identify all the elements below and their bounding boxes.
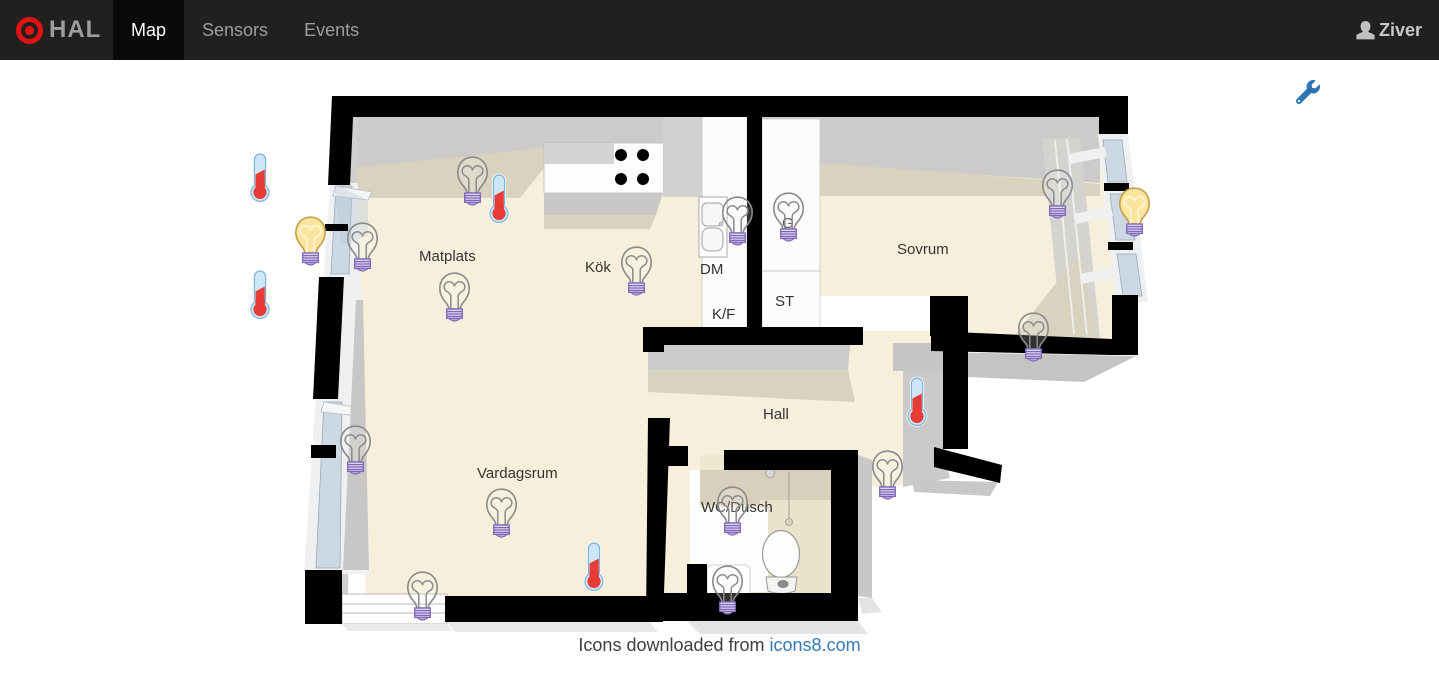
svg-text:Sovrum: Sovrum (897, 241, 949, 258)
svg-text:Kök: Kök (585, 259, 611, 276)
svg-text:Matplats: Matplats (419, 248, 476, 265)
svg-text:ST: ST (775, 293, 794, 310)
svg-text:DM: DM (700, 261, 723, 278)
svg-text:Vardagsrum: Vardagsrum (477, 465, 558, 482)
svg-text:Hall: Hall (763, 406, 789, 423)
svg-text:K/F: K/F (712, 306, 735, 323)
